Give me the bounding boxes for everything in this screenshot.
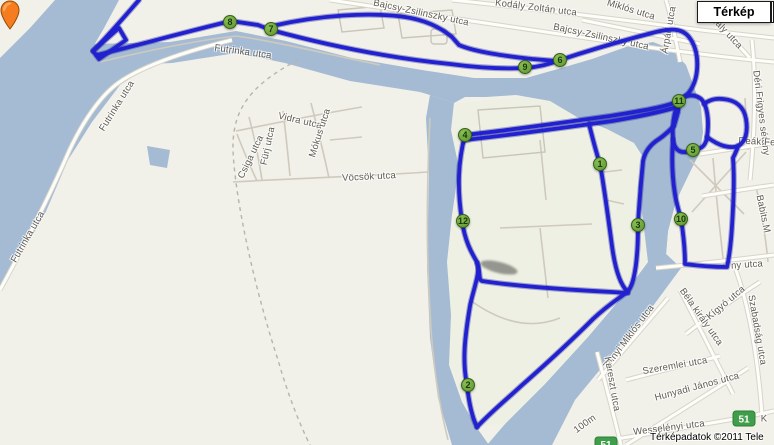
street-label: ny utca: [731, 258, 764, 271]
route-marker-5[interactable]: 5: [686, 143, 700, 157]
street-label: Futrinka utca: [214, 43, 272, 62]
street-label: Futrinka utca: [97, 79, 137, 134]
street-label: Hunyadi János utca: [654, 370, 741, 403]
street-label: Szabadság utca: [745, 294, 768, 366]
street-label: Kígyó utca: [705, 284, 748, 323]
map-type-button[interactable]: Térkép: [697, 1, 771, 23]
street-label: Kereszt utca: [602, 356, 622, 412]
street-labels: Futrinka utcaFutrinka utcaFutrinka utcaV…: [0, 0, 774, 445]
copyright-attribution: Térképadatok ©2011 Tele: [650, 432, 764, 443]
route-marker-4[interactable]: 4: [458, 128, 472, 142]
street-label: Vöcsök utca: [342, 170, 396, 184]
street-label: K: [761, 414, 768, 425]
route-marker-6[interactable]: 6: [553, 53, 567, 67]
route-marker-11[interactable]: 11: [672, 94, 686, 108]
street-label: Mókus utca: [307, 107, 333, 159]
street-label: Bajcsy-Zsilinszky utca: [552, 22, 649, 53]
map-canvas[interactable]: Futrinka utcaFutrinka utcaFutrinka utcaV…: [0, 0, 774, 445]
location-pin[interactable]: [0, 0, 20, 30]
street-label: Bajcsy-Zsilinszky utca: [372, 0, 469, 28]
route-marker-12[interactable]: 12: [456, 214, 470, 228]
route-marker-2[interactable]: 2: [461, 378, 475, 392]
route-marker-1[interactable]: 1: [593, 157, 607, 171]
street-label: Árpád utca: [659, 5, 678, 54]
route-marker-10[interactable]: 10: [674, 212, 688, 226]
street-label: Szeremlei utca: [642, 355, 709, 377]
street-label: Kodály Zoltán utca: [494, 0, 577, 18]
route-marker-7[interactable]: 7: [264, 22, 278, 36]
street-label: Deák Fe: [738, 136, 774, 149]
street-label: 100m: [572, 412, 598, 435]
route-marker-3[interactable]: 3: [631, 218, 645, 232]
street-label: Babits M: [754, 194, 773, 234]
route-marker-9[interactable]: 9: [518, 60, 532, 74]
street-label: Futrinka utca: [9, 209, 47, 264]
route-marker-8[interactable]: 8: [223, 15, 237, 29]
street-label: Miklós utca: [606, 0, 657, 23]
